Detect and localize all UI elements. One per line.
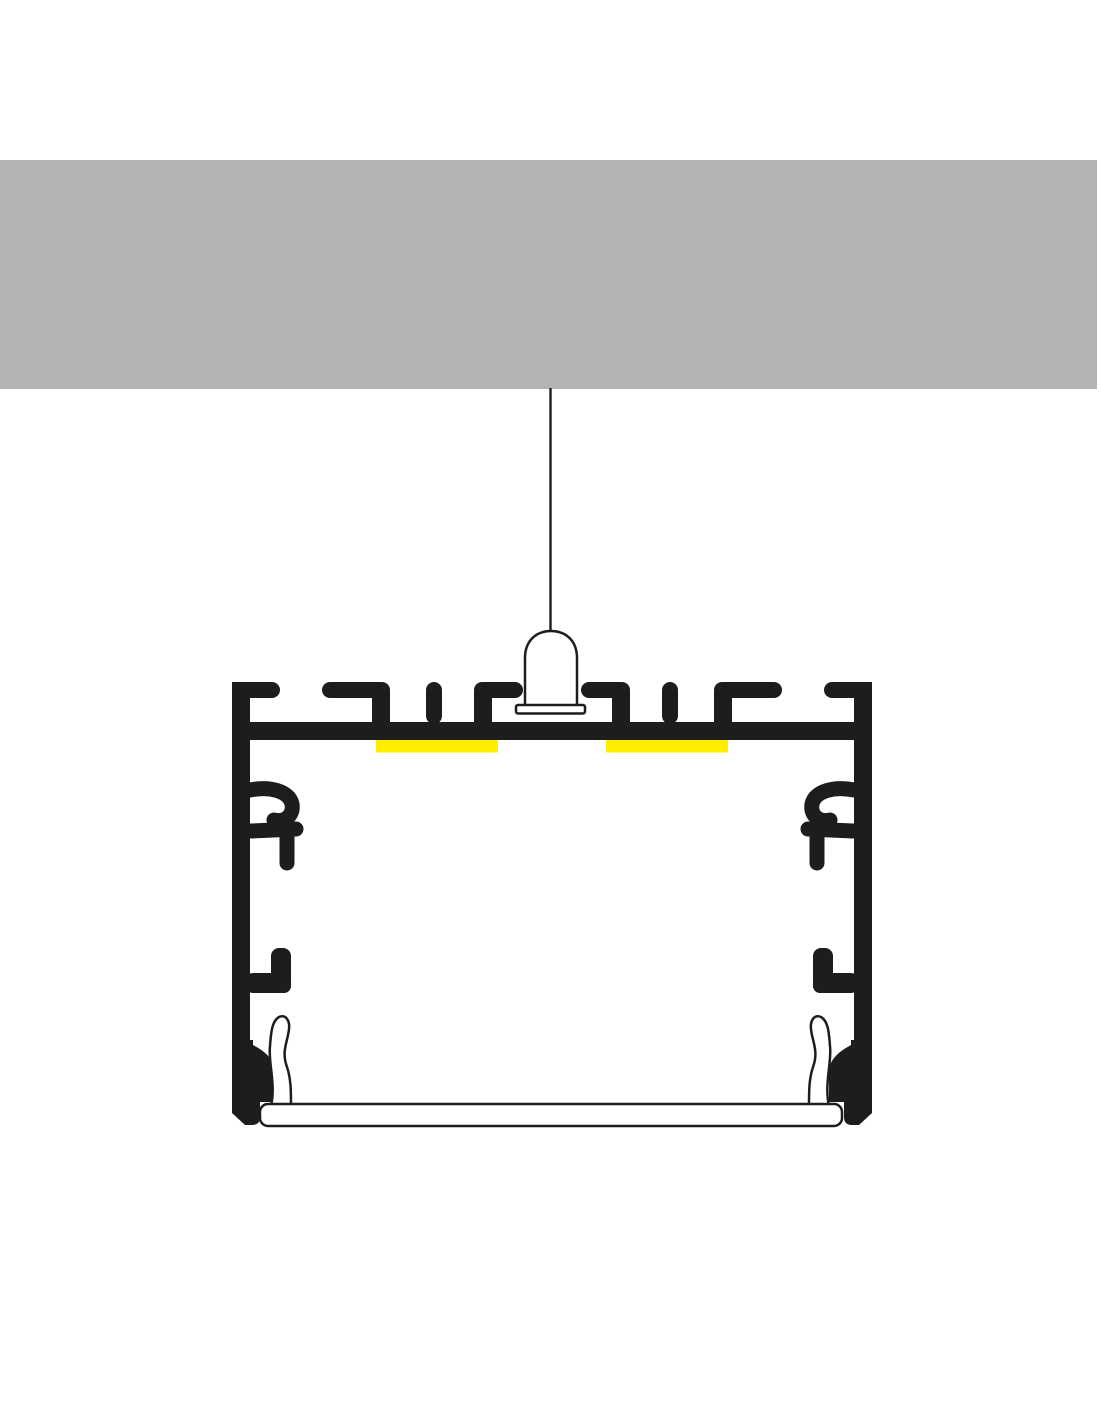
diffuser-lens-plate — [260, 1104, 842, 1126]
diffuser-clip-leg-right — [809, 1016, 830, 1106]
diagram-canvas — [0, 0, 1100, 1422]
diffuser-cover — [260, 1016, 842, 1126]
diffuser-clip-leg-left — [270, 1016, 291, 1106]
top-rail-corner-right — [824, 682, 872, 698]
top-rail-stub-left — [426, 682, 442, 724]
top-rail-stub-right — [662, 682, 678, 724]
profile-inner-top-plate — [232, 722, 872, 740]
upper-clip-right-curl — [812, 789, 854, 821]
ceiling — [0, 160, 1097, 389]
led-strip-left — [376, 740, 498, 753]
profile-body — [232, 682, 872, 1125]
lower-hook-right-arm — [813, 973, 858, 993]
upper-clip-left-curl — [250, 789, 292, 821]
lower-hook-left-arm — [246, 973, 291, 993]
lower-hook-right — [813, 948, 858, 993]
lower-hook-left — [246, 948, 291, 993]
upper-clip-right — [808, 789, 854, 863]
top-rail-leg-left — [372, 690, 390, 724]
led-strips — [376, 740, 728, 753]
led-strip-right — [606, 740, 728, 753]
top-rail-corner-left — [232, 682, 280, 698]
suspension-mount-flange — [516, 705, 585, 714]
suspension-wire — [549, 388, 551, 634]
top-rail-center-leg-right — [612, 690, 630, 724]
top-rail-leg-right — [714, 690, 732, 724]
upper-clip-left — [250, 789, 296, 863]
top-rail-center-leg-left — [474, 690, 492, 724]
profile-diagram — [0, 0, 1100, 1422]
ceiling-slab — [0, 160, 1097, 389]
suspension-wire-line — [549, 388, 551, 634]
suspension-mount — [516, 631, 585, 714]
suspension-mount-body — [525, 631, 577, 708]
